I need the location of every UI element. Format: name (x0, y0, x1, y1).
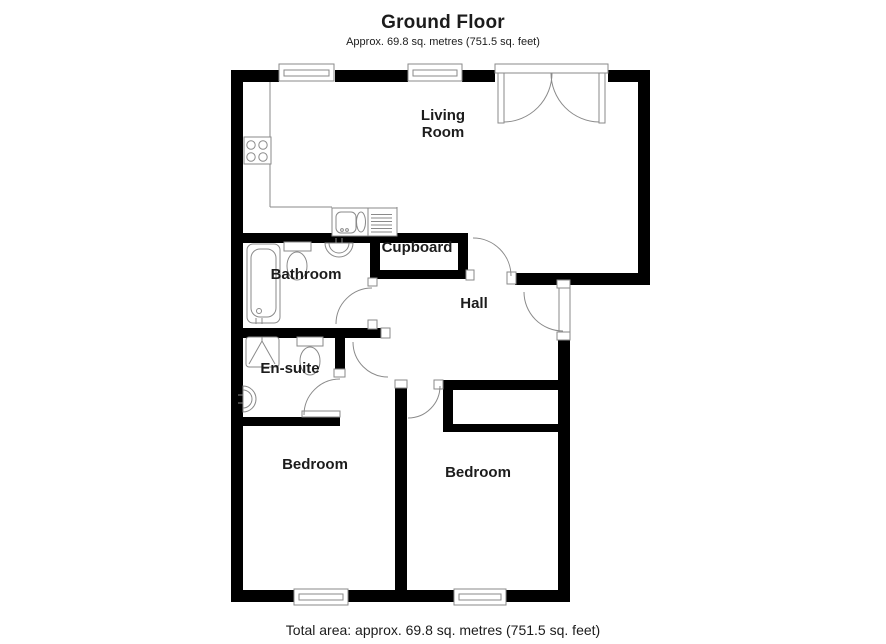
window-icon (294, 589, 348, 605)
room-label-bathroom: Bathroom (256, 266, 356, 283)
total-area-text: Total area: approx. 69.8 sq. metres (751… (0, 622, 886, 638)
door-icon (466, 238, 516, 284)
room-label-bedroom-left: Bedroom (265, 456, 365, 473)
wall-segment (231, 70, 243, 602)
window-icon (454, 589, 506, 605)
wardrobe-recess (443, 380, 570, 390)
kitchen-fixtures (244, 82, 397, 236)
room-label-bedroom-right: Bedroom (428, 464, 528, 481)
room-label-cupboard: Cupboard (367, 239, 467, 256)
door-icon (336, 278, 377, 329)
french-door-icon (495, 64, 608, 123)
room-label-ensuite: En-suite (240, 360, 340, 377)
window-icon (279, 64, 334, 81)
wall-segment (395, 388, 407, 602)
floor-plan-page: Ground Floor Approx. 69.8 sq. metres (75… (0, 0, 886, 644)
bathtub-icon (247, 244, 280, 324)
wall-segment (638, 70, 650, 285)
floor-plan-drawing (0, 0, 886, 644)
walls (231, 70, 650, 602)
wall-segment (370, 270, 468, 279)
room-label-hall: Hall (424, 295, 524, 312)
door-icon (408, 380, 443, 418)
wardrobe-recess (443, 424, 570, 432)
wall-segment (515, 273, 650, 285)
window-icon (408, 64, 462, 81)
room-label-living-room: Living Room (408, 107, 478, 141)
kitchen-sink-icon (332, 208, 397, 236)
hob-icon (244, 137, 271, 164)
wall-segment (243, 417, 340, 426)
entrance-door-icon (524, 280, 570, 340)
